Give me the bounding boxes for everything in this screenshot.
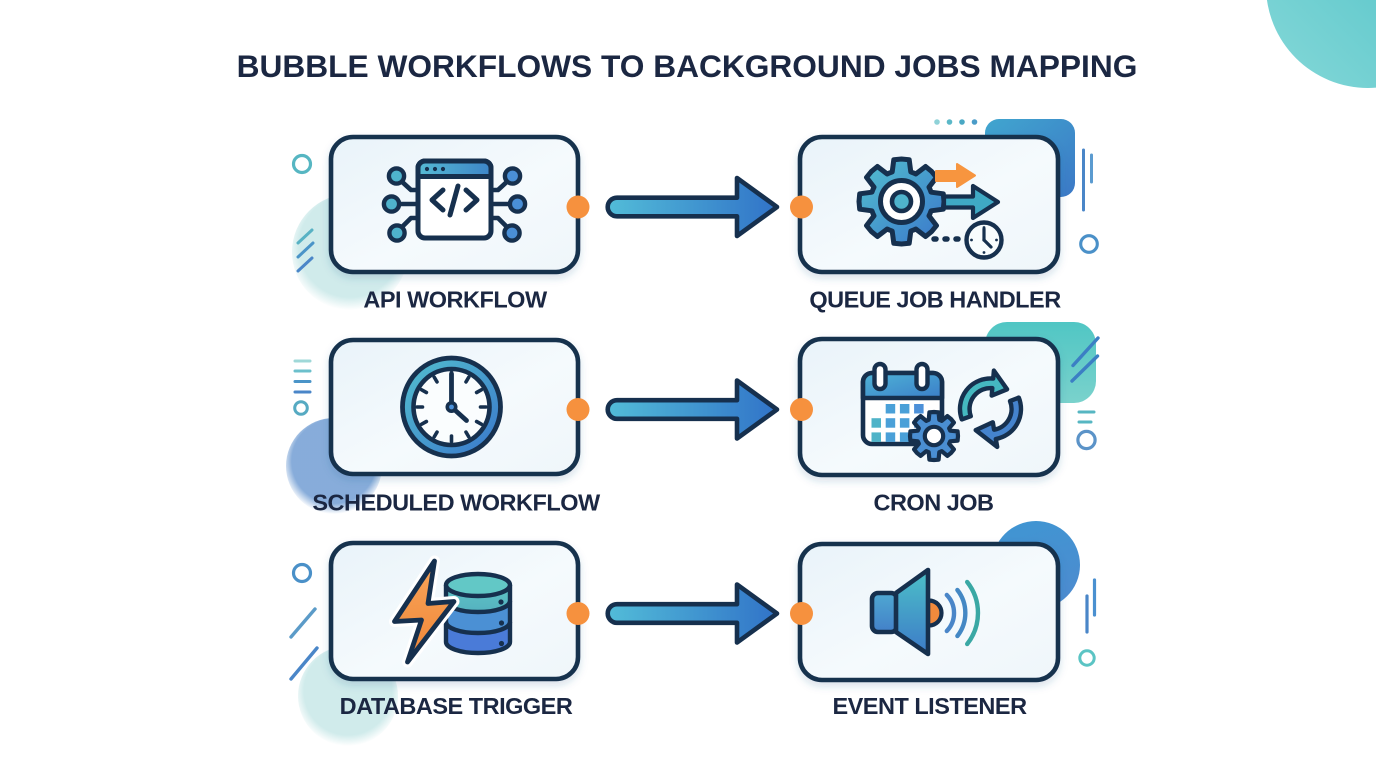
svg-text:CRON JOB: CRON JOB	[873, 490, 993, 516]
svg-text:SCHEDULED WORKFLOW: SCHEDULED WORKFLOW	[312, 490, 601, 516]
svg-text:DATABASE TRIGGER: DATABASE TRIGGER	[340, 693, 573, 719]
svg-text:BUBBLE WORKFLOWS TO BACKGROUND: BUBBLE WORKFLOWS TO BACKGROUND JOBS MAPP…	[237, 48, 1138, 84]
svg-text:API WORKFLOW: API WORKFLOW	[363, 287, 548, 313]
svg-text:EVENT LISTENER: EVENT LISTENER	[832, 693, 1027, 719]
svg-text:QUEUE JOB HANDLER: QUEUE JOB HANDLER	[809, 287, 1061, 313]
